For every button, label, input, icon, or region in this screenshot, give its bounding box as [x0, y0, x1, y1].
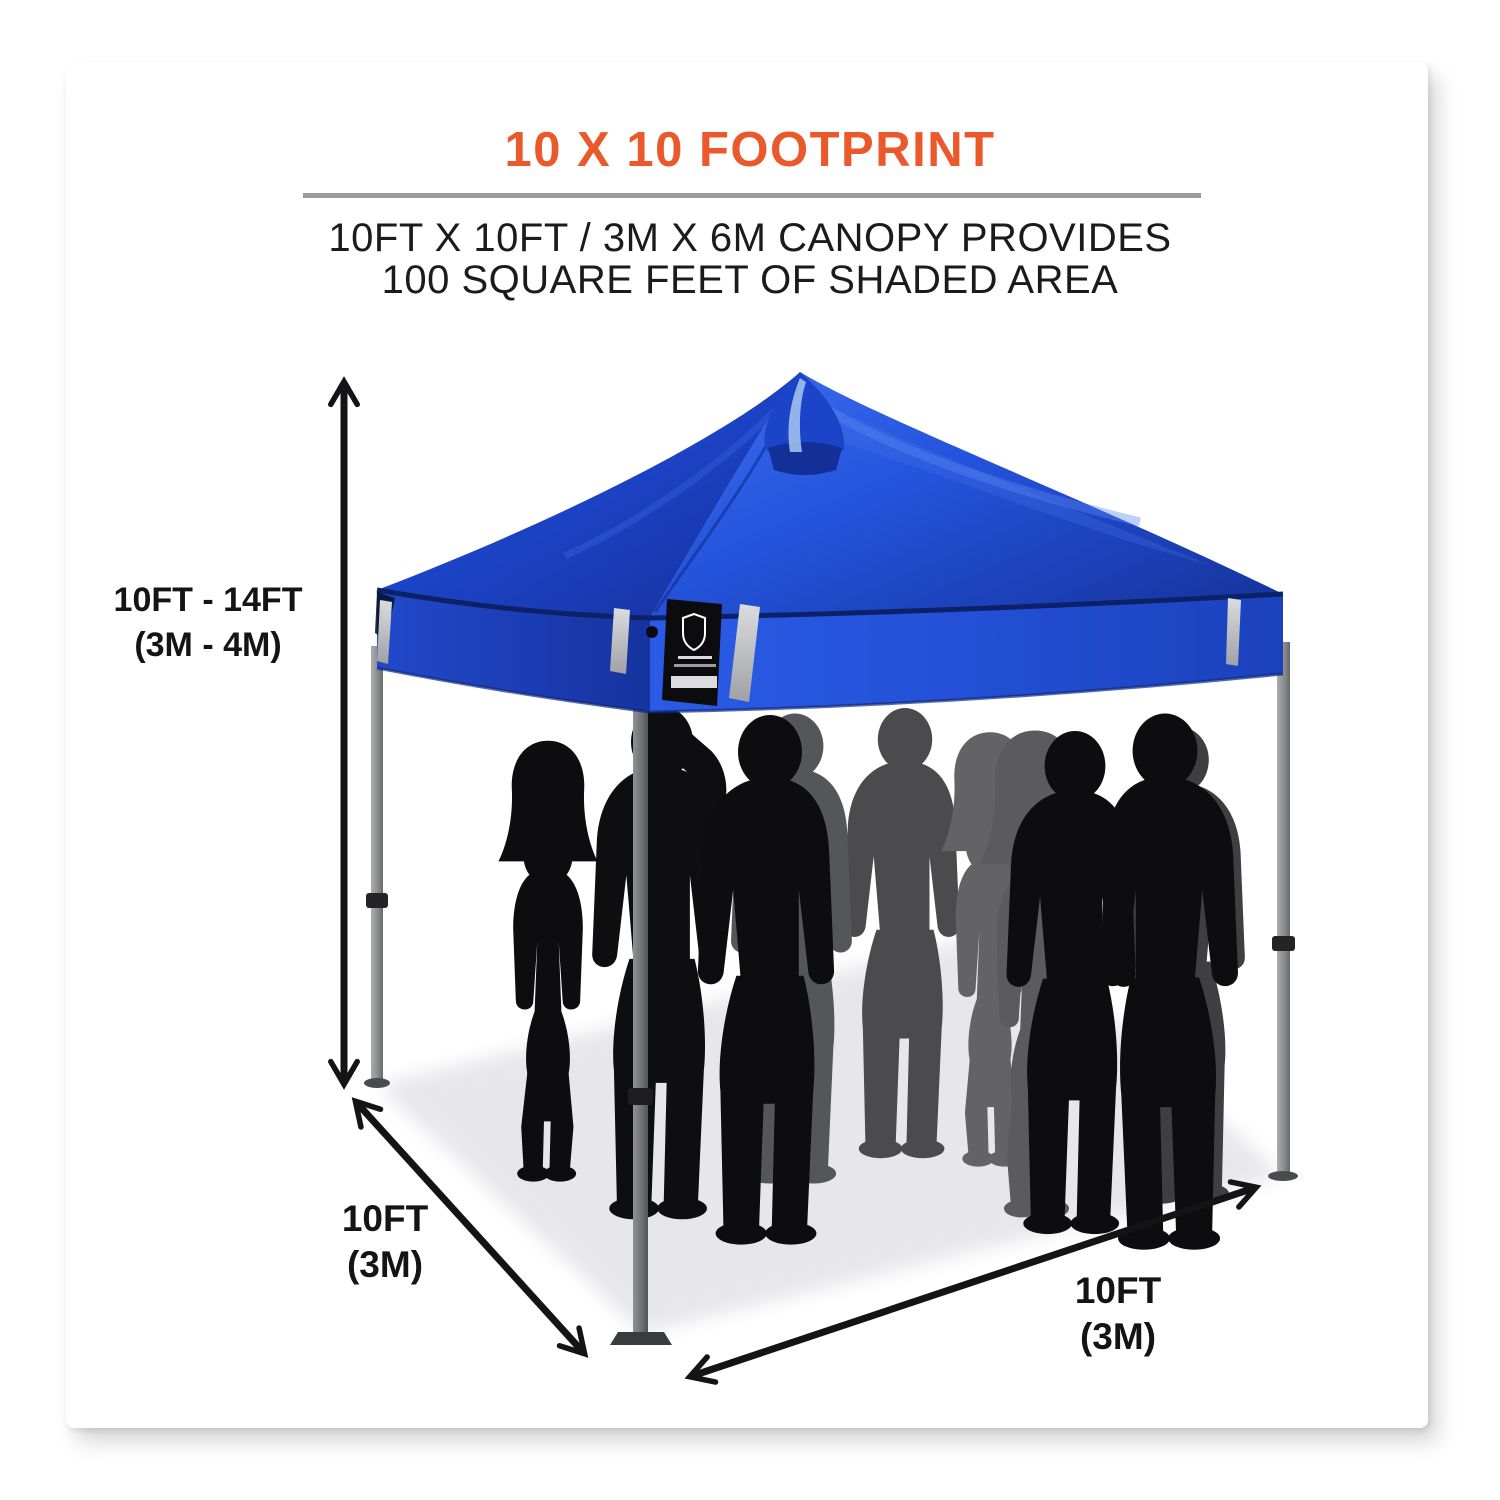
canopy: [375, 372, 1283, 712]
header-subtitle: 10FT X 10FT / 3M X 6M CANOPY PROVIDES 10…: [0, 217, 1500, 301]
canopy-footprint-infographic: { "header": { "title": "10 X 10 FOOTPRIN…: [0, 0, 1500, 1500]
depth-dimension-line-2: (3M): [292, 1242, 478, 1288]
header-divider: [303, 193, 1201, 198]
tent-pole-left: [364, 646, 390, 1088]
width-dimension-line-2: (3M): [1023, 1314, 1213, 1360]
width-dimension-line-1: 10FT: [1023, 1268, 1213, 1314]
subtitle-line-2: 100 SQUARE FEET OF SHADED AREA: [0, 259, 1500, 301]
canopy-strap-loop: [646, 626, 658, 638]
canopy-roof-right-face: [650, 372, 1283, 618]
canopy-peak-vent: [764, 372, 844, 475]
width-dimension-label: 10FT (3M): [1023, 1268, 1213, 1360]
brand-logo-patch: [662, 599, 722, 706]
depth-dimension-line-1: 10FT: [292, 1196, 478, 1242]
height-dimension-line-1: 10FT - 14FT: [58, 578, 358, 623]
depth-dimension-label: 10FT (3M): [292, 1196, 478, 1288]
height-dimension-label: 10FT - 14FT (3M - 4M): [58, 578, 358, 668]
tent-pole-right: [1268, 642, 1298, 1181]
page-title: 10 X 10 FOOTPRINT: [0, 122, 1500, 178]
height-dimension-line-2: (3M - 4M): [58, 623, 358, 668]
subtitle-line-1: 10FT X 10FT / 3M X 6M CANOPY PROVIDES: [0, 217, 1500, 259]
